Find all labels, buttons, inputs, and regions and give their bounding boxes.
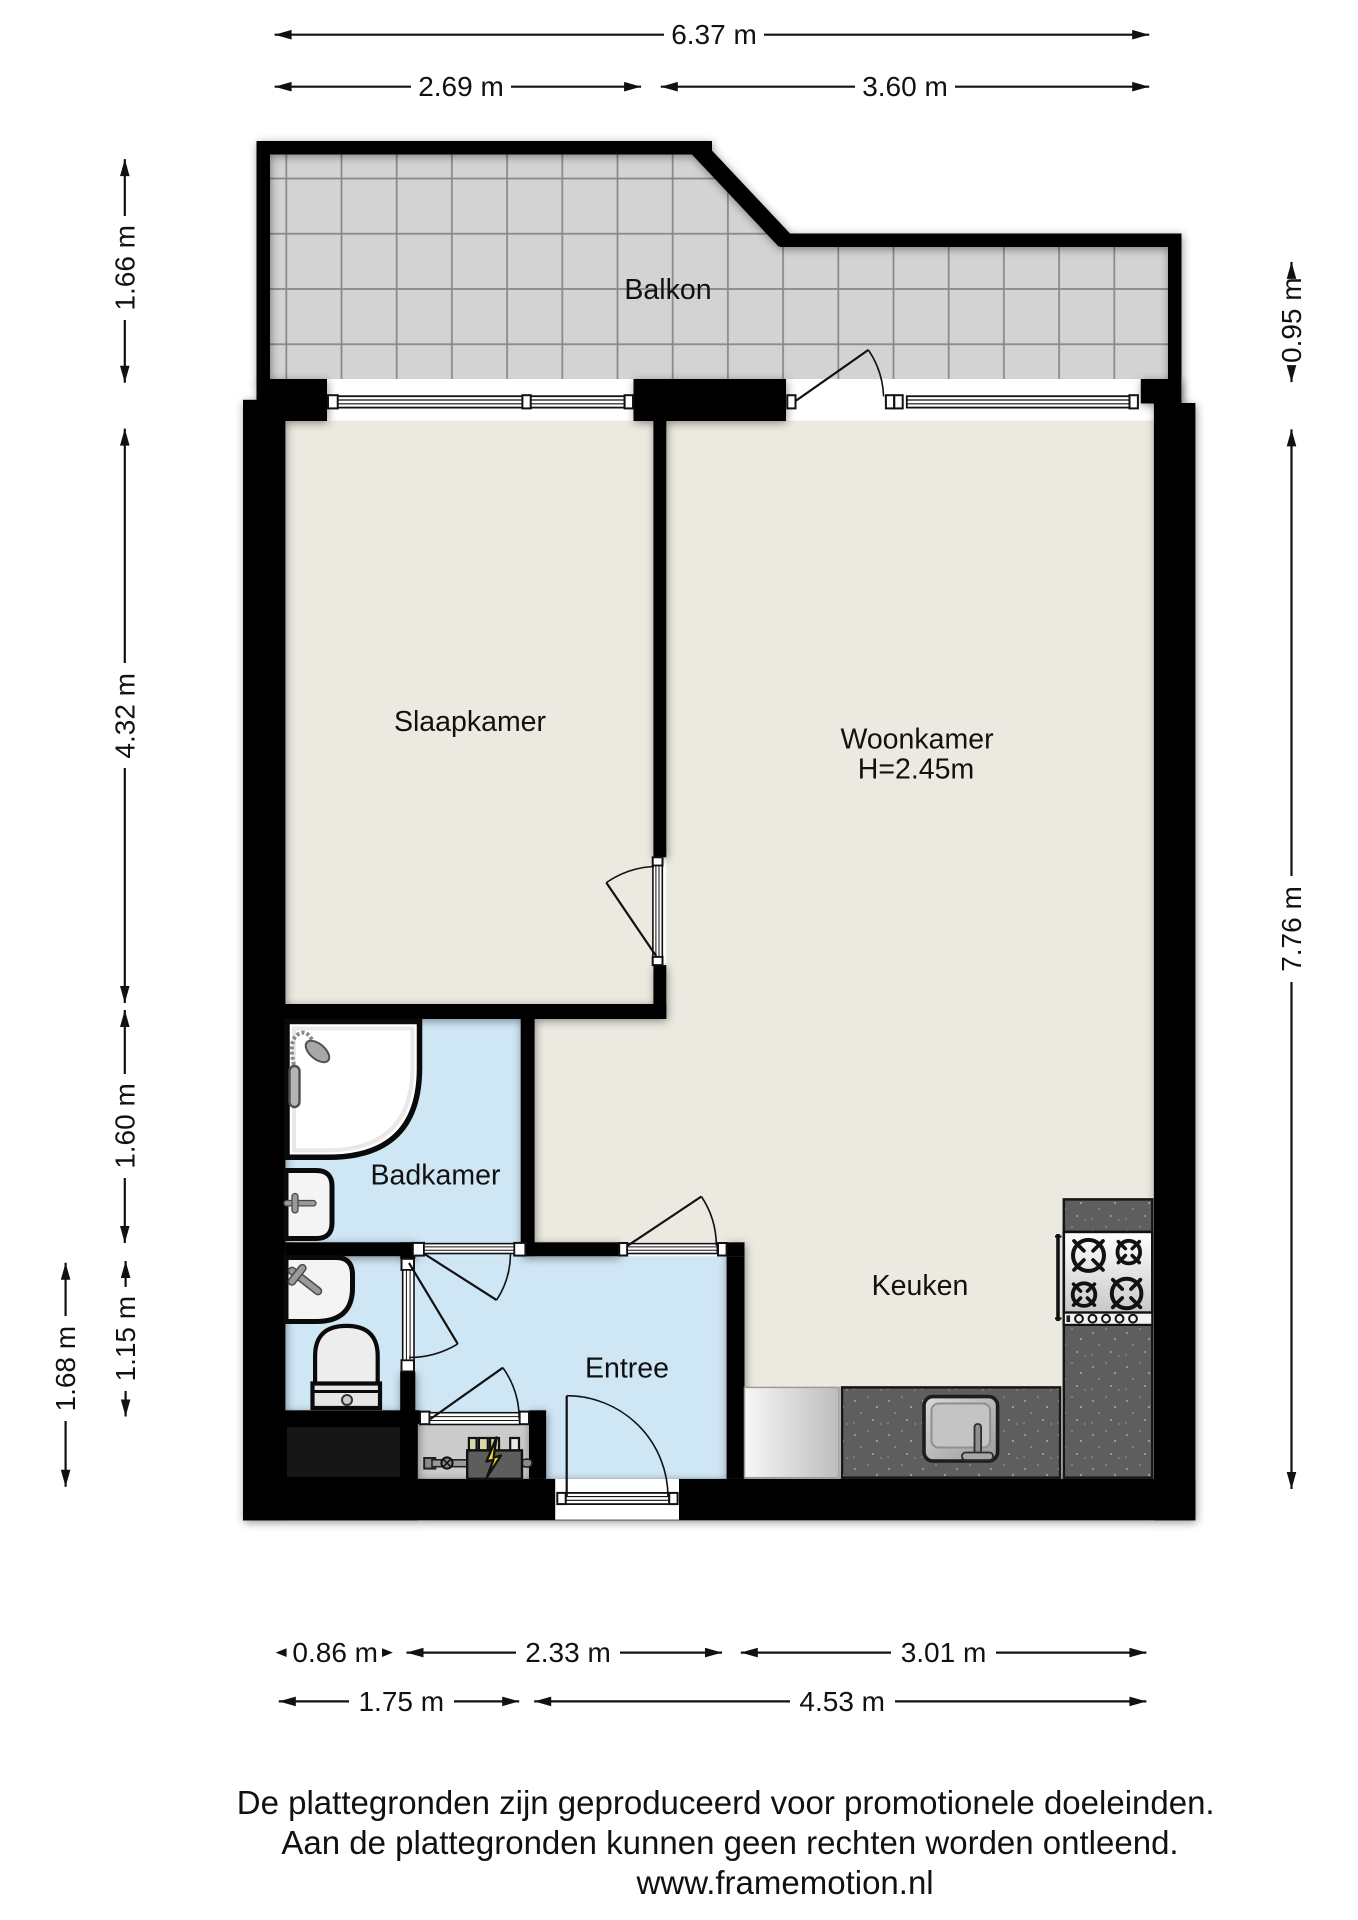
svg-text:1.75 m: 1.75 m xyxy=(358,1686,444,1717)
svg-text:6.37 m: 6.37 m xyxy=(671,19,757,50)
svg-text:Balkon: Balkon xyxy=(624,274,711,306)
svg-text:4.32 m: 4.32 m xyxy=(109,673,140,759)
svg-text:0.95 m: 0.95 m xyxy=(1276,277,1307,363)
svg-text:1.60 m: 1.60 m xyxy=(109,1083,140,1169)
svg-text:1.68 m: 1.68 m xyxy=(50,1326,81,1412)
svg-text:Aan de plattegronden kunnen ge: Aan de plattegronden kunnen geen rechten… xyxy=(281,1824,1178,1861)
svg-text:www.framemotion.nl: www.framemotion.nl xyxy=(636,1864,934,1901)
svg-text:H=2.45m: H=2.45m xyxy=(858,754,974,786)
svg-text:Entree: Entree xyxy=(585,1352,669,1384)
svg-text:7.76 m: 7.76 m xyxy=(1276,886,1307,972)
svg-text:Badkamer: Badkamer xyxy=(371,1160,501,1192)
svg-text:Slaapkamer: Slaapkamer xyxy=(394,706,547,738)
svg-text:1.66 m: 1.66 m xyxy=(109,225,140,311)
svg-text:2.33 m: 2.33 m xyxy=(525,1637,611,1668)
svg-text:Woonkamer: Woonkamer xyxy=(840,724,994,756)
svg-text:Keuken: Keuken xyxy=(872,1270,969,1302)
svg-text:4.53 m: 4.53 m xyxy=(799,1686,885,1717)
svg-text:2.69 m: 2.69 m xyxy=(418,71,504,102)
svg-text:3.01 m: 3.01 m xyxy=(901,1637,987,1668)
svg-text:3.60 m: 3.60 m xyxy=(862,71,948,102)
svg-text:0.86 m: 0.86 m xyxy=(292,1637,378,1668)
svg-text:1.15 m: 1.15 m xyxy=(110,1296,141,1382)
svg-text:De plattegronden zijn geproduc: De plattegronden zijn geproduceerd voor … xyxy=(237,1784,1215,1821)
